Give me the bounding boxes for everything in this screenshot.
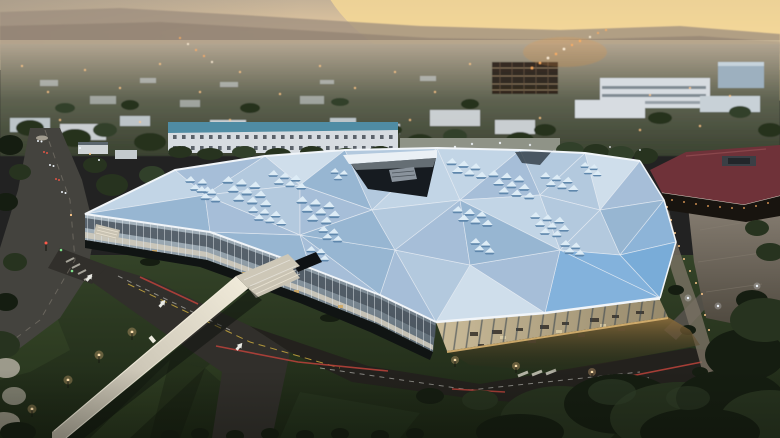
construction-frame [492,62,558,94]
aerial-photo: Aerial dusk photograph of a vast low-ris… [0,0,780,438]
roadside-tree [3,253,27,271]
rooftop-unit-inner [728,158,750,164]
roadside-tree [9,164,31,180]
bottom-vignette [0,370,780,438]
maroon-building [650,145,780,222]
aerial-photo-canvas: Aerial dusk photograph of a vast low-ris… [0,0,780,438]
